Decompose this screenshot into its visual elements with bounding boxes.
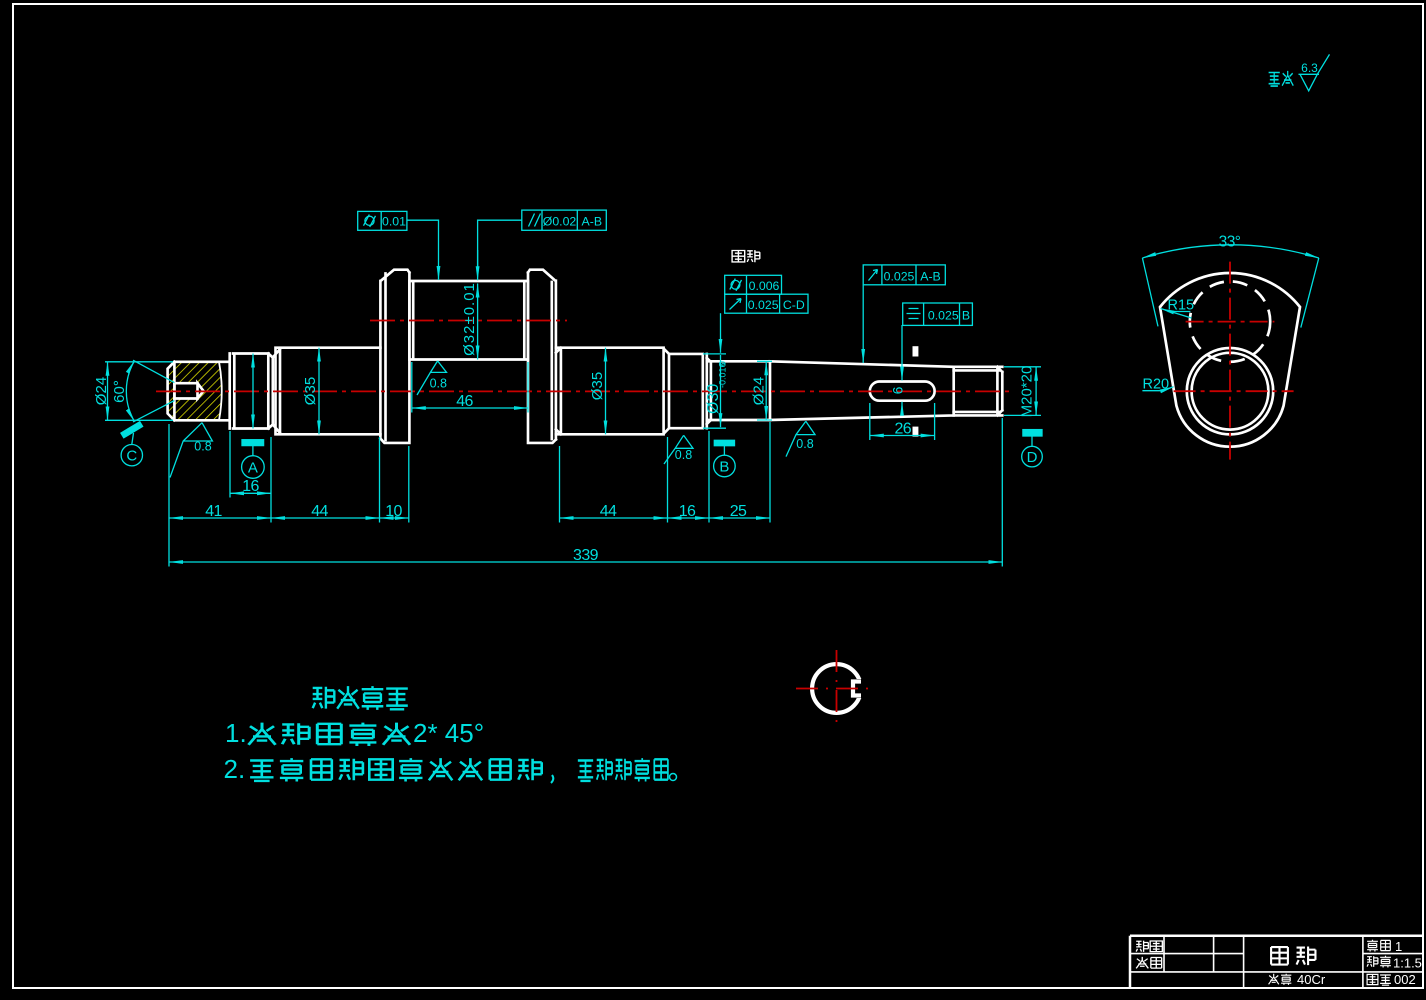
svg-text:0.8: 0.8 bbox=[194, 440, 211, 454]
svg-text:0.025: 0.025 bbox=[748, 298, 779, 312]
svg-text:Ø0.02: Ø0.02 bbox=[543, 215, 577, 229]
svg-text:16: 16 bbox=[242, 478, 259, 495]
svg-text:33°: 33° bbox=[1219, 234, 1241, 251]
svg-text:0.025: 0.025 bbox=[928, 309, 959, 323]
svg-text:0.8: 0.8 bbox=[430, 377, 447, 391]
svg-text:A-B: A-B bbox=[920, 270, 941, 284]
svg-text:R15: R15 bbox=[1168, 298, 1195, 314]
svg-text:25: 25 bbox=[730, 503, 747, 520]
svg-text:0.01: 0.01 bbox=[382, 215, 406, 229]
svg-text:40Cr: 40Cr bbox=[1297, 972, 1326, 987]
svg-text:Ø24: Ø24 bbox=[93, 377, 110, 405]
svg-text:1:1.5: 1:1.5 bbox=[1393, 956, 1422, 971]
svg-text:0.8: 0.8 bbox=[675, 448, 692, 462]
svg-text:Ø32±0.01: Ø32±0.01 bbox=[461, 282, 478, 356]
svg-text:16: 16 bbox=[679, 503, 696, 520]
svg-text:44: 44 bbox=[311, 503, 328, 520]
svg-text:Ø35: Ø35 bbox=[589, 372, 606, 400]
svg-text:0.8: 0.8 bbox=[796, 437, 813, 451]
svg-text:6: 6 bbox=[890, 386, 906, 394]
svg-text:46: 46 bbox=[456, 393, 473, 410]
svg-text:1.: 1. bbox=[225, 718, 247, 748]
svg-text:60°: 60° bbox=[111, 380, 128, 403]
svg-text:Ø24: Ø24 bbox=[751, 377, 768, 405]
svg-text:10: 10 bbox=[385, 503, 402, 520]
svg-text:C-D: C-D bbox=[783, 298, 805, 312]
svg-text:D: D bbox=[1027, 449, 1038, 466]
svg-text:B: B bbox=[719, 458, 729, 475]
svg-text:0.006: 0.006 bbox=[749, 279, 780, 293]
svg-text:A: A bbox=[248, 459, 258, 476]
svg-text:Ø35: Ø35 bbox=[302, 377, 319, 405]
svg-text:339: 339 bbox=[573, 547, 599, 564]
svg-text:A-B: A-B bbox=[582, 215, 603, 229]
svg-text:26: 26 bbox=[894, 421, 911, 438]
svg-text:6.3: 6.3 bbox=[1301, 61, 1318, 75]
svg-text:C: C bbox=[126, 448, 137, 465]
svg-text:44: 44 bbox=[600, 503, 617, 520]
svg-text:0.025: 0.025 bbox=[884, 270, 915, 284]
svg-text:2* 45°: 2* 45° bbox=[413, 718, 484, 748]
svg-text:0: 0 bbox=[718, 361, 728, 366]
svg-text:R20: R20 bbox=[1143, 377, 1170, 393]
svg-text:002: 002 bbox=[1394, 972, 1416, 987]
svg-text:1: 1 bbox=[1395, 939, 1402, 954]
svg-text:B: B bbox=[962, 309, 970, 323]
svg-text:2.: 2. bbox=[224, 754, 246, 784]
svg-text:M20*20: M20*20 bbox=[1019, 366, 1036, 418]
svg-text:41: 41 bbox=[205, 503, 222, 520]
